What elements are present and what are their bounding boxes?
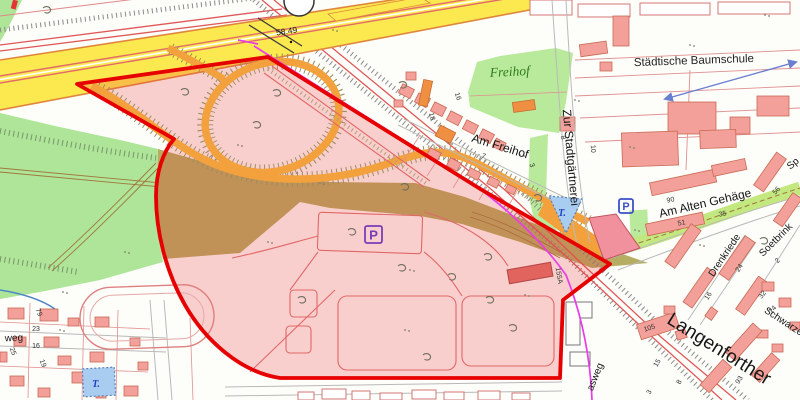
grass-dot [578, 100, 580, 102]
pond-label: T. [92, 379, 100, 390]
grass-dot [124, 251, 126, 253]
grass-dot [319, 182, 321, 184]
grass-dot [629, 146, 631, 148]
grass-dot [768, 15, 770, 17]
grass-dot [699, 244, 701, 246]
grass-dot [703, 245, 705, 247]
grass-dot [404, 329, 406, 331]
grass-dot [336, 30, 338, 32]
grass-dot [66, 292, 68, 294]
grass-dot [267, 241, 269, 243]
map-viewport[interactable]: PPT.T. 58.49FreihofStädtische Baumschule… [0, 0, 800, 400]
grass-dot [128, 252, 130, 254]
label-weg: weg [4, 333, 24, 345]
grass-dot [574, 99, 576, 101]
grass-dot [633, 147, 635, 149]
grass-dot [63, 330, 65, 332]
grass-dot [271, 242, 273, 244]
svg-text:P: P [622, 201, 629, 213]
svg-text:P: P [369, 228, 378, 243]
grass-dot [409, 269, 411, 271]
grass-dot [323, 183, 325, 185]
grass-dot [62, 291, 64, 293]
grass-dot [241, 145, 243, 147]
house-number-16: 16 [32, 343, 40, 350]
grass-dot [693, 45, 695, 47]
grass-dot [59, 329, 61, 331]
pond-label: T. [558, 208, 566, 219]
grass-dot [638, 230, 640, 232]
elevation-dot [290, 41, 292, 43]
grass-dot [447, 142, 449, 144]
house-number-23: 23 [32, 326, 40, 333]
grass-dot [528, 295, 530, 297]
grass-dot [237, 144, 239, 146]
grass-dot [451, 143, 453, 145]
house-number-10: 10 [589, 145, 597, 153]
grass-dot [764, 14, 766, 16]
grass-dot [634, 229, 636, 231]
grass-dot [413, 270, 415, 272]
grass-dot [689, 44, 691, 46]
grass-dot [408, 330, 410, 332]
grass-dot [524, 294, 526, 296]
grass-dot [332, 29, 334, 31]
label-freihof: Freihof [488, 63, 532, 80]
